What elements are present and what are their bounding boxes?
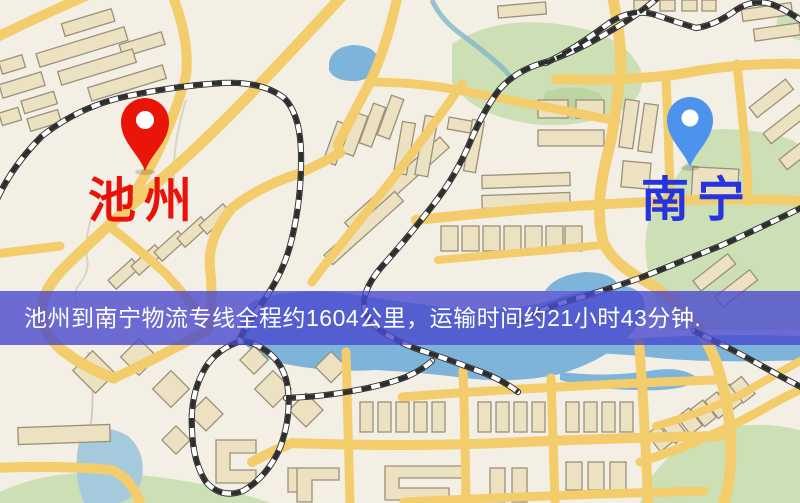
origin-label: 池州 — [88, 178, 200, 226]
route-info-banner: 池州到南宁物流专线全程约1604公里，运输时间约21小时43分钟. — [0, 291, 800, 345]
map-canvas — [0, 0, 800, 503]
route-map-image: 池州 南宁 池州到南宁物流专线全程约1604公里，运输时间约21小时43分钟. — [0, 0, 800, 503]
route-info-text: 池州到南宁物流专线全程约1604公里，运输时间约21小时43分钟. — [24, 305, 701, 331]
destination-label: 南宁 — [641, 177, 753, 225]
